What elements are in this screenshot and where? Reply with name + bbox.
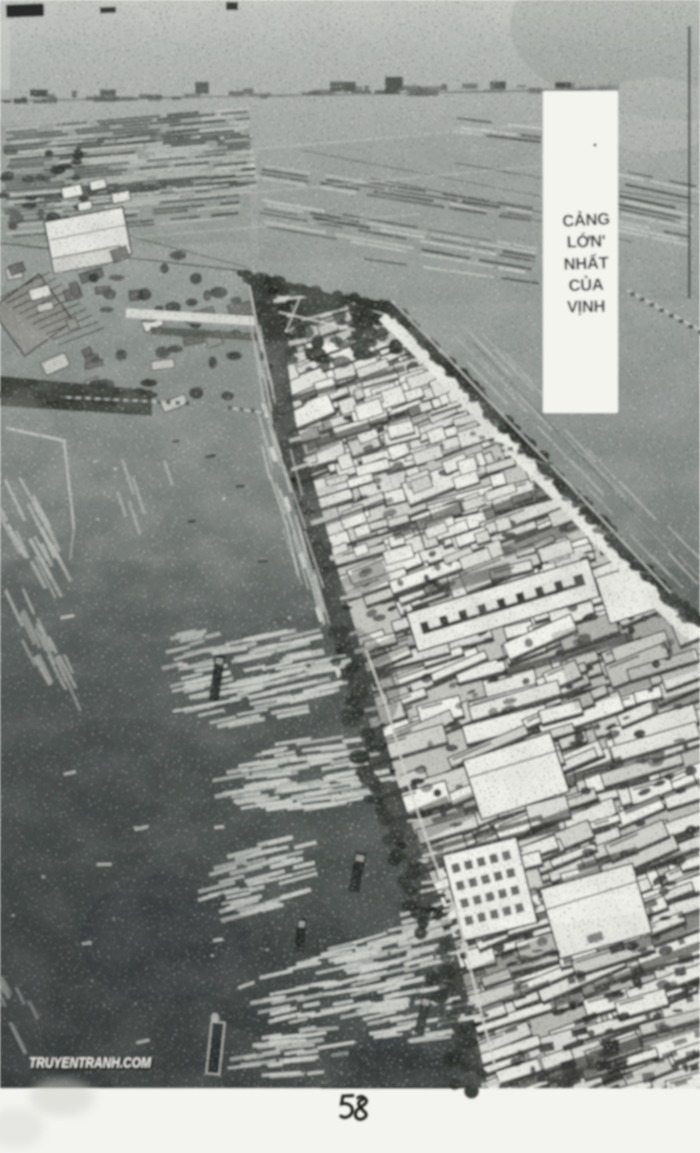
svg-text:CỦA: CỦA xyxy=(568,275,604,295)
svg-text:NHẤT: NHẤT xyxy=(563,253,608,274)
svg-text:TRUYENTRANH.COM: TRUYENTRANH.COM xyxy=(29,1055,151,1072)
svg-text:LỚN': LỚN' xyxy=(566,231,606,251)
svg-text:CẢNG: CẢNG xyxy=(562,209,610,230)
svg-text:VỊNH: VỊNH xyxy=(567,298,606,317)
